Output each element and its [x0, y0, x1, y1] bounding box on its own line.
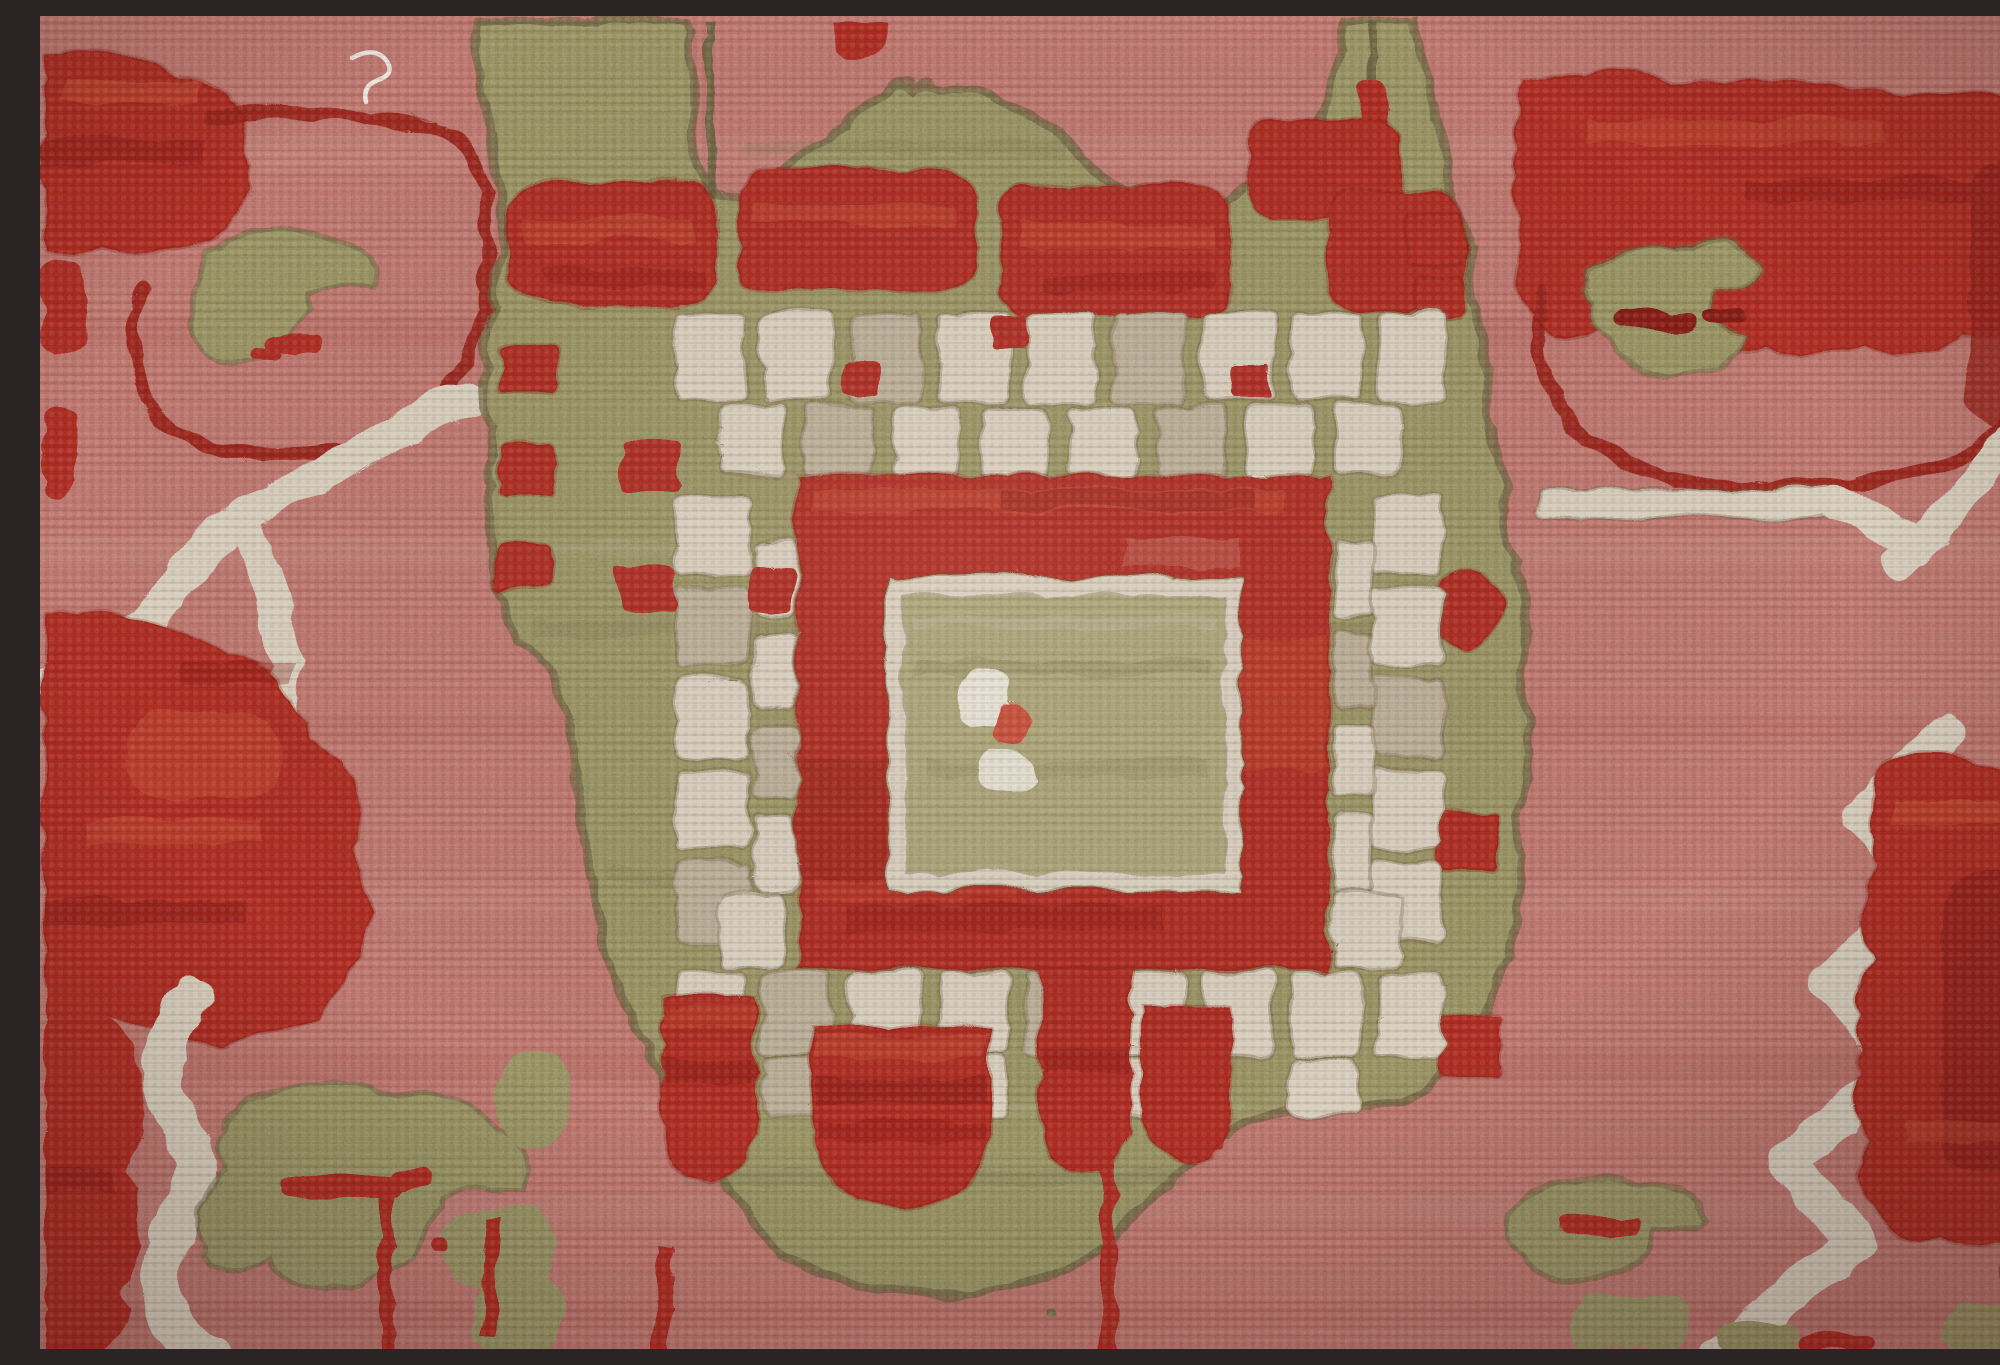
rug-artwork: Close-up photograph of a hand-knotted wo… — [40, 16, 2000, 1349]
rug-photo: Close-up photograph of a hand-knotted wo… — [40, 16, 2000, 1349]
photo-vignette — [40, 16, 2000, 1349]
